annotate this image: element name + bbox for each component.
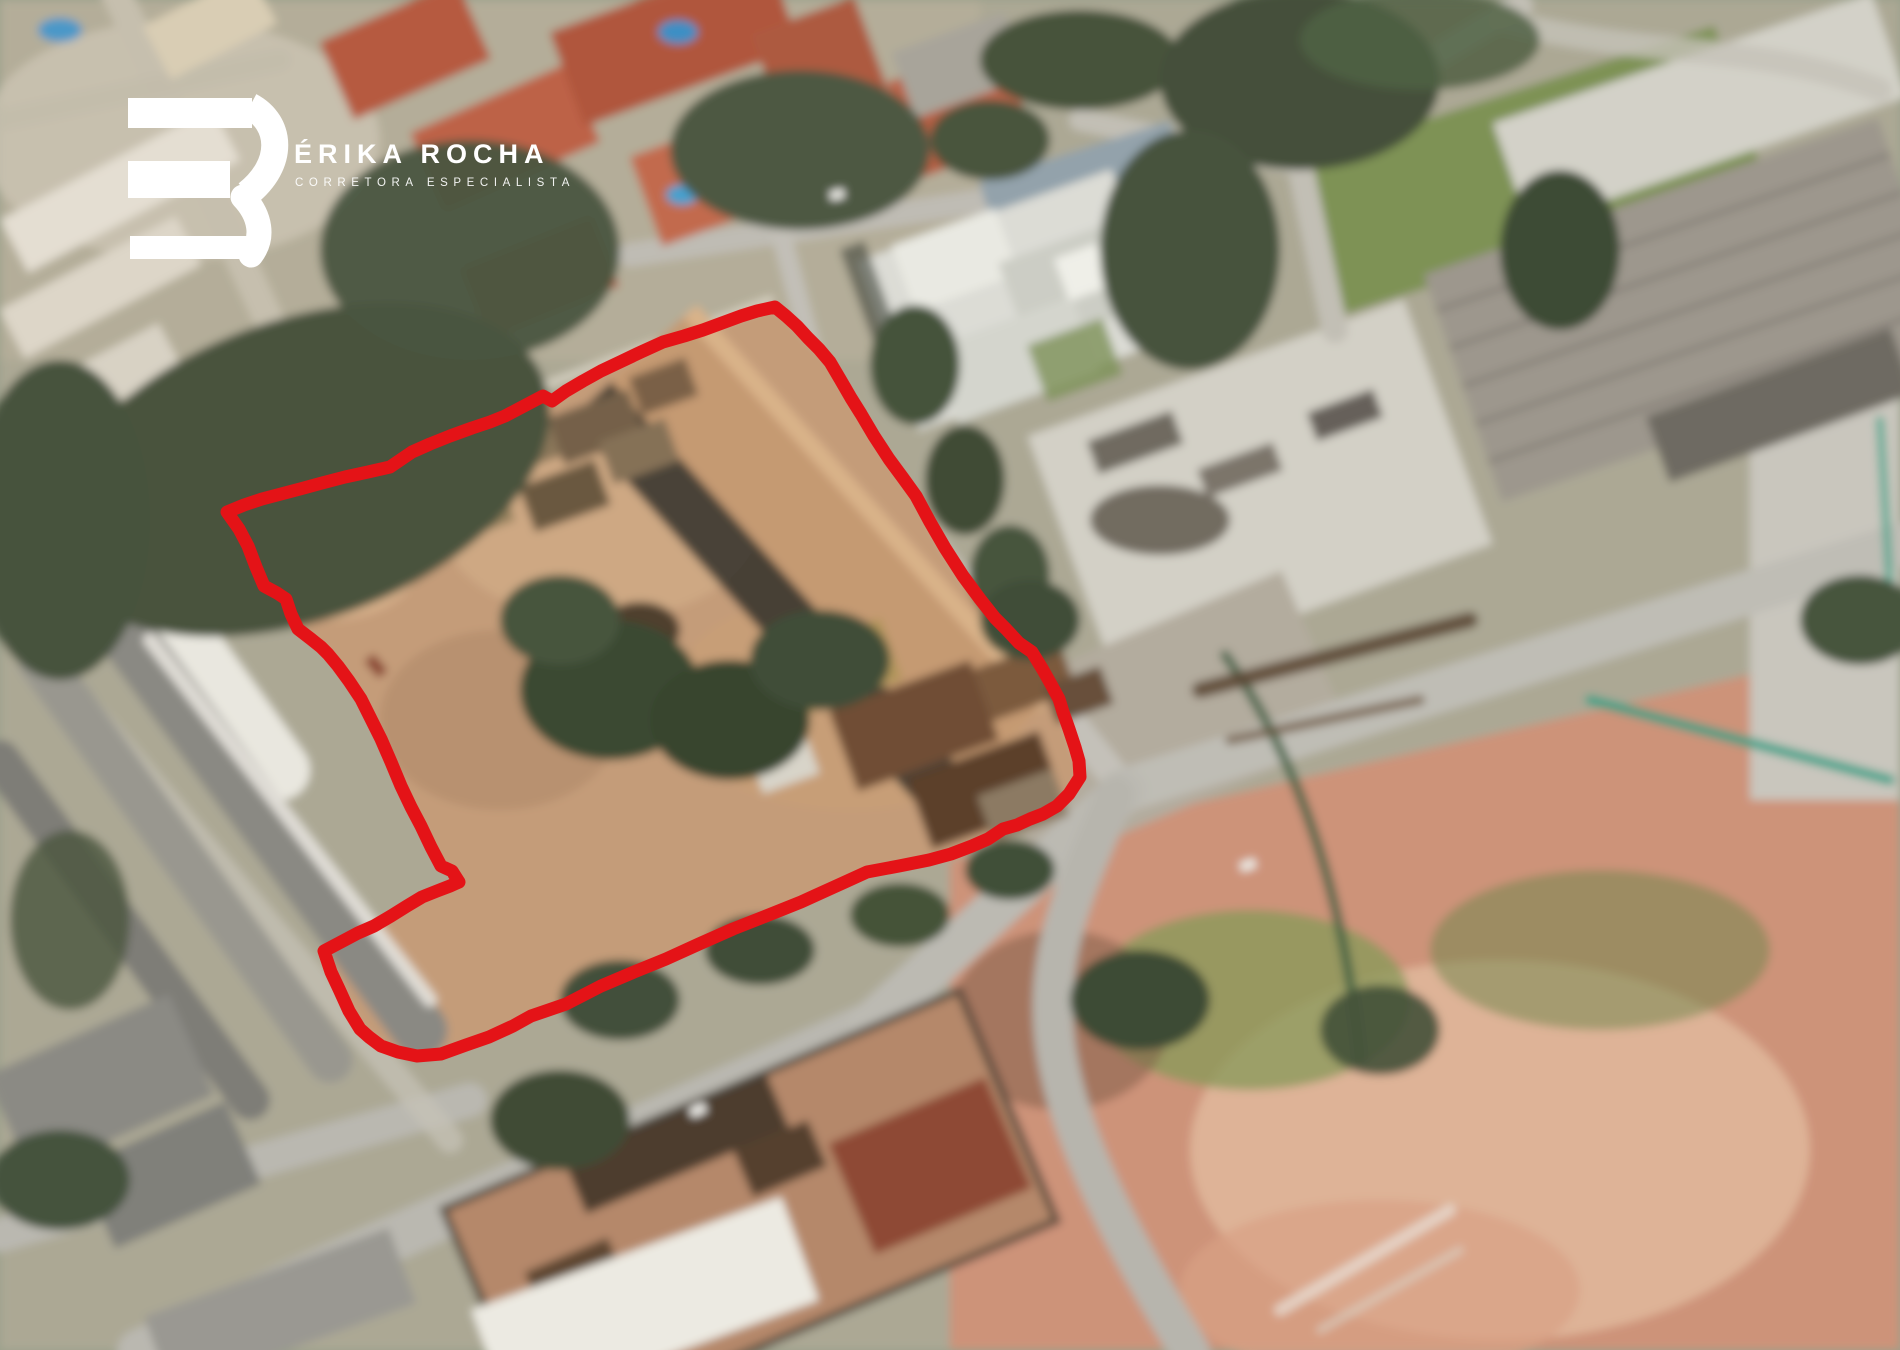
satellite-imagery xyxy=(0,0,1900,1350)
brand-tagline: CORRETORA ESPECIALISTA xyxy=(295,177,575,189)
aerial-scene: ÉRIKA ROCHA CORRETORA ESPECIALISTA xyxy=(0,0,1900,1350)
aerial-photo: ÉRIKA ROCHA CORRETORA ESPECIALISTA xyxy=(0,0,1900,1350)
brand-name: ÉRIKA ROCHA xyxy=(294,138,550,169)
